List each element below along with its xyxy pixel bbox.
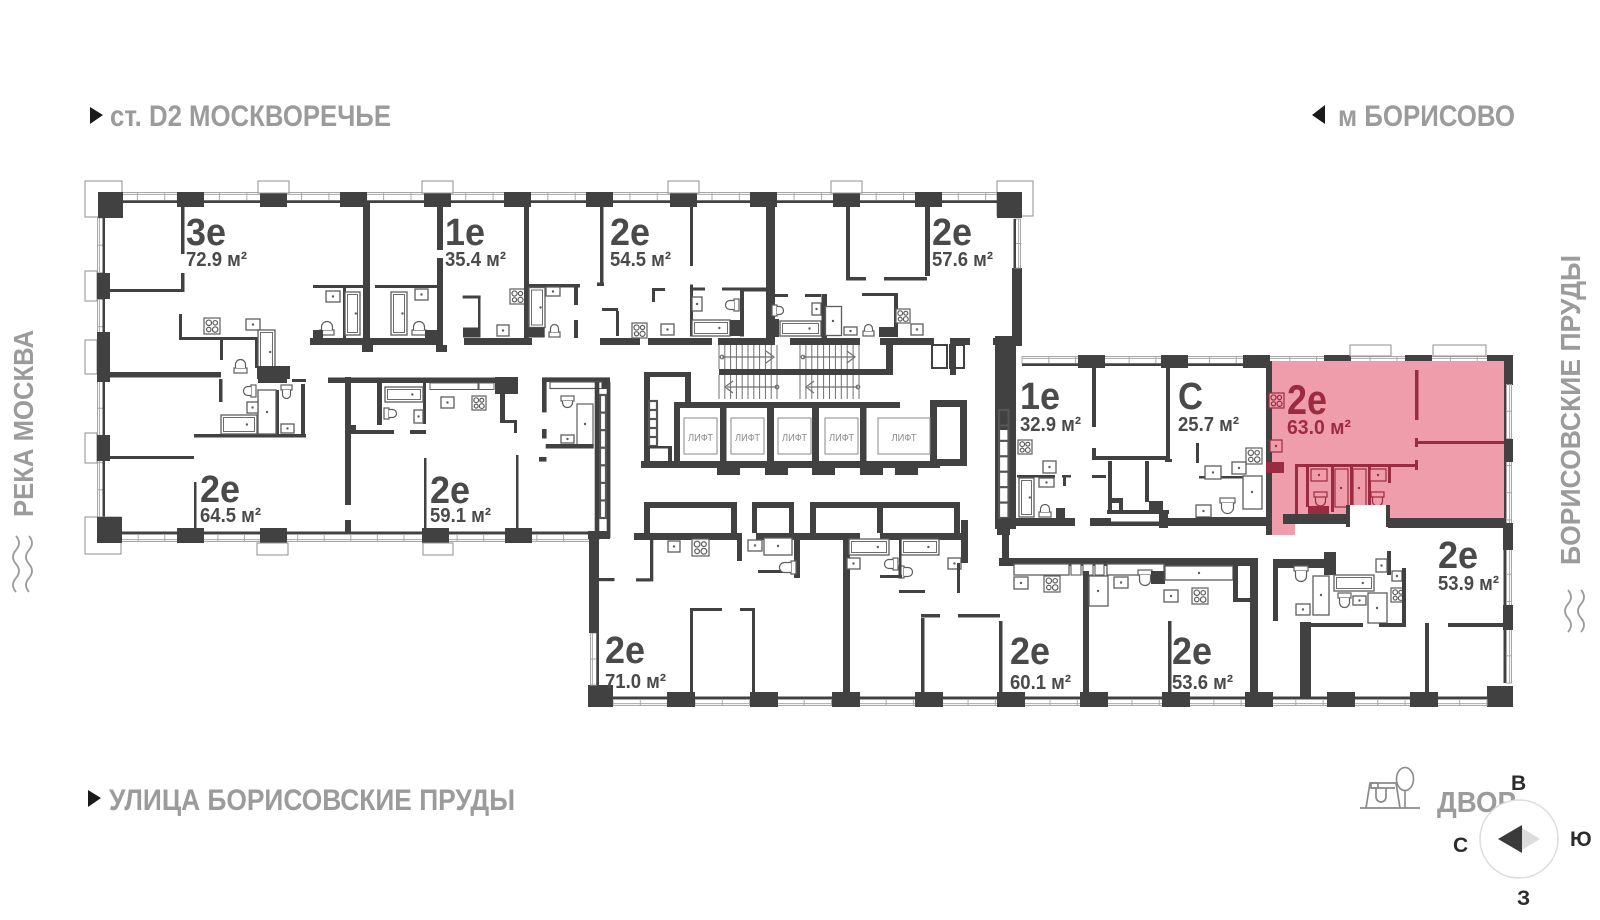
svg-text:60.1 м²: 60.1 м² [1010, 672, 1071, 694]
svg-text:ЛИФТ: ЛИФТ [829, 433, 854, 444]
svg-text:ЛИФТ: ЛИФТ [688, 433, 713, 444]
svg-text:35.4 м²: 35.4 м² [445, 249, 506, 271]
svg-text:54.5 м²: 54.5 м² [610, 249, 671, 271]
svg-text:64.5 м²: 64.5 м² [200, 505, 261, 527]
svg-text:БОРИСОВСКИЕ ПРУДЫ: БОРИСОВСКИЕ ПРУДЫ [1555, 255, 1586, 565]
svg-text:2е: 2е [932, 212, 972, 254]
svg-text:2е: 2е [1287, 376, 1327, 423]
svg-text:ЛИФТ: ЛИФТ [782, 433, 807, 444]
svg-text:53.9 м²: 53.9 м² [1438, 573, 1499, 595]
svg-text:З: З [1517, 887, 1530, 910]
svg-text:РЕКА МОСКВА: РЕКА МОСКВА [8, 330, 39, 517]
svg-text:1е: 1е [1020, 376, 1060, 418]
svg-text:ЛИФТ: ЛИФТ [735, 433, 760, 444]
svg-text:63.0 м²: 63.0 м² [1287, 417, 1351, 439]
svg-text:53.6 м²: 53.6 м² [1172, 672, 1233, 694]
svg-text:2е: 2е [605, 630, 645, 672]
svg-text:71.0 м²: 71.0 м² [605, 671, 666, 693]
svg-text:ст. D2 МОСКВОРЕЧЬЕ: ст. D2 МОСКВОРЕЧЬЕ [110, 100, 391, 133]
svg-text:С: С [1453, 834, 1468, 857]
svg-text:УЛИЦА БОРИСОВСКИЕ ПРУДЫ: УЛИЦА БОРИСОВСКИЕ ПРУДЫ [109, 784, 515, 817]
svg-text:С: С [1178, 376, 1203, 418]
svg-text:2е: 2е [610, 212, 650, 254]
svg-text:м БОРИСОВО: м БОРИСОВО [1338, 100, 1515, 133]
svg-text:ЛИФТ: ЛИФТ [892, 433, 917, 444]
svg-text:57.6 м²: 57.6 м² [932, 249, 993, 271]
svg-text:1е: 1е [445, 212, 485, 254]
svg-text:В: В [1511, 772, 1526, 795]
svg-text:Ю: Ю [1570, 828, 1592, 851]
svg-text:3е: 3е [186, 212, 226, 254]
svg-text:2е: 2е [1010, 631, 1050, 673]
svg-text:25.7 м²: 25.7 м² [1178, 414, 1239, 436]
svg-text:32.9 м²: 32.9 м² [1020, 414, 1081, 436]
svg-text:72.9 м²: 72.9 м² [186, 249, 247, 271]
svg-text:2е: 2е [1438, 535, 1478, 577]
svg-text:59.1 м²: 59.1 м² [430, 505, 491, 527]
svg-text:2е: 2е [1172, 631, 1212, 673]
